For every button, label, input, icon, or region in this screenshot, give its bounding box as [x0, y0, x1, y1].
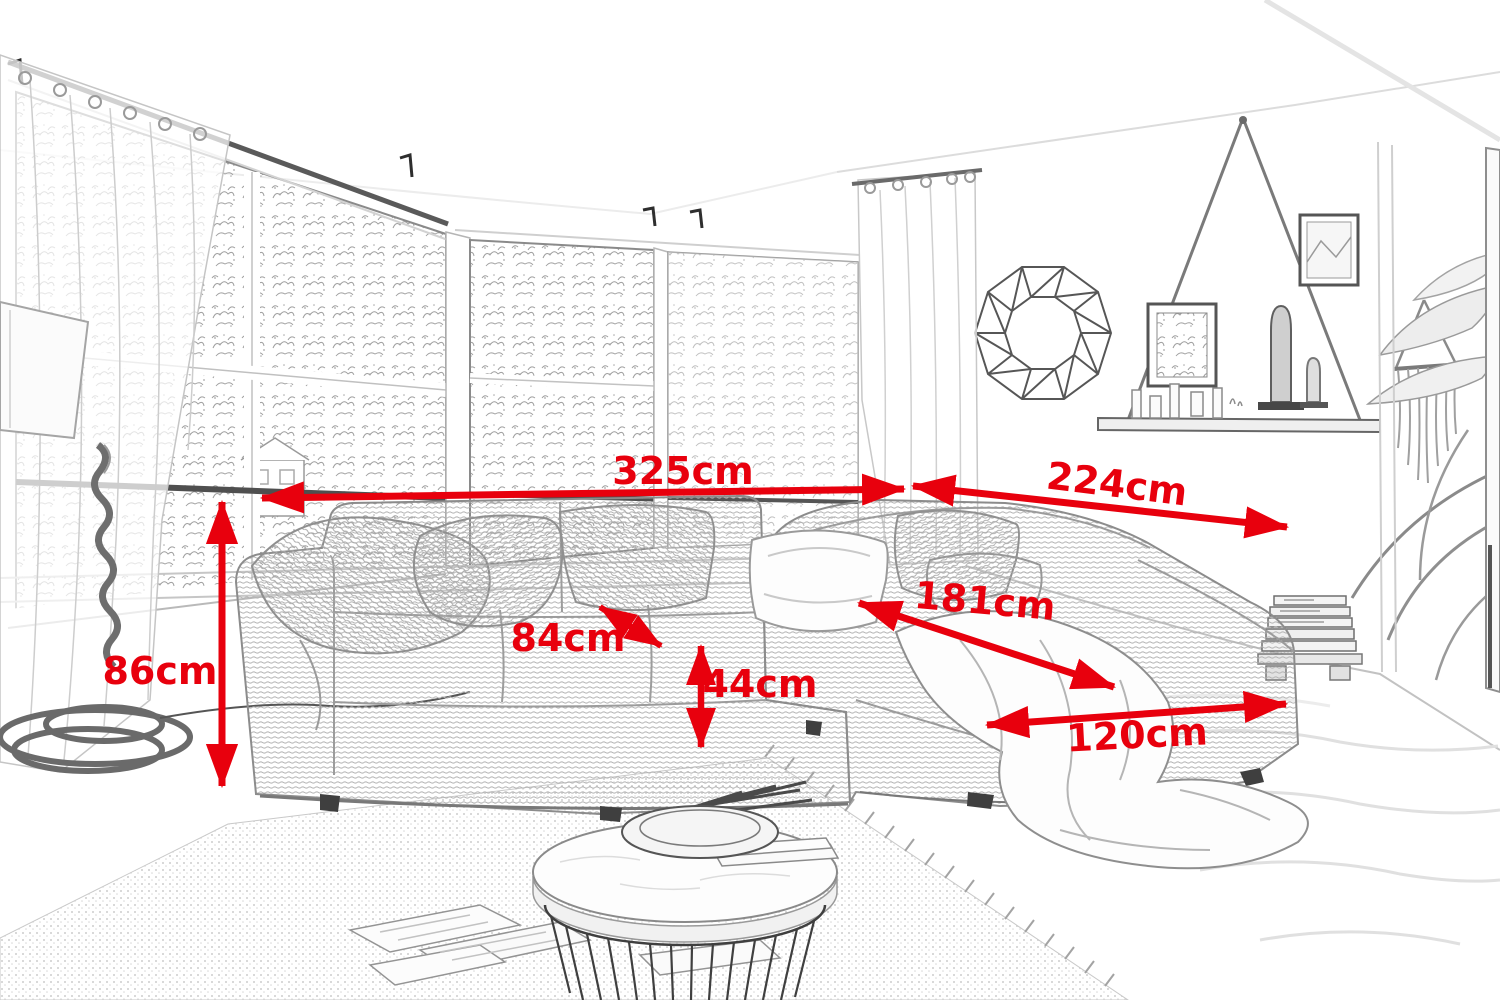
dimension-label-chaise-width: 120cm: [1065, 712, 1208, 757]
dimension-label-total-width: 325cm: [612, 452, 753, 490]
tall-figurine: [1271, 306, 1291, 402]
candles: [1132, 384, 1222, 418]
framed-wall-picture: [1300, 215, 1358, 285]
dimension-label-seat-height: 44cm: [702, 665, 817, 703]
dimension-label-back-height: 86cm: [102, 652, 217, 690]
dimension-label-seat-depth: 84cm: [510, 619, 625, 657]
palm-plant: [1352, 252, 1500, 680]
dimension-label-chaise-length: 181cm: [913, 576, 1057, 626]
geometric-mirror: [975, 267, 1111, 399]
product-dimension-image: 325cm 224cm 86cm 84cm 44cm 181cm 120cm: [0, 0, 1500, 1000]
lamp-shade: [0, 302, 88, 438]
room-sketch: [0, 0, 1500, 1000]
small-figurine: [1307, 358, 1320, 402]
door-panel: [1378, 142, 1500, 692]
